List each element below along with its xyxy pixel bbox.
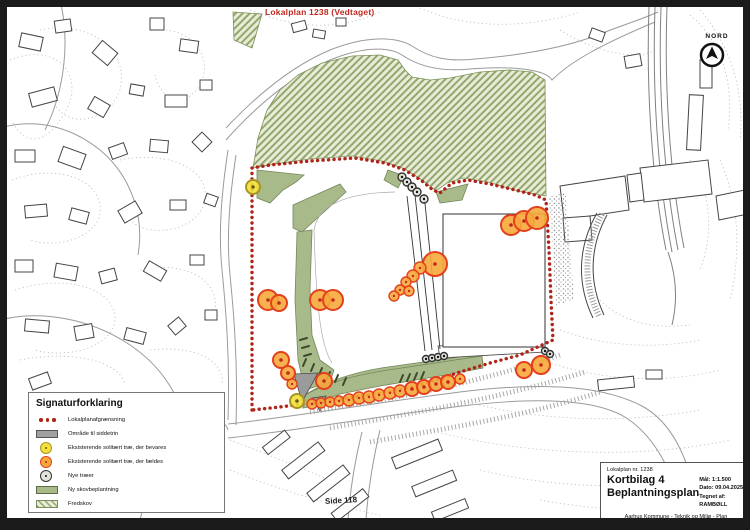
tree-fell-dot (311, 403, 313, 405)
legend-item: Lokalplanafgrænsning (36, 413, 217, 427)
legend-item-label: Eksisterende solitært træ, der bevares (68, 445, 166, 451)
tree-fell-dot (348, 399, 350, 401)
tree-fell-dot (535, 216, 539, 220)
red-dots-icon (36, 418, 62, 422)
legend-item-label: Fredskov (68, 501, 92, 507)
tree-fell-dot (399, 289, 401, 291)
green-rect-icon (36, 486, 62, 494)
tree-fell-dot (433, 262, 437, 266)
tree-fell-dot (331, 298, 335, 302)
legend-item-label: Ny skovbeplantning (68, 487, 119, 493)
title-block-sheet: Kortbilag 4 (607, 474, 699, 487)
tree-fell-dot (539, 363, 543, 367)
page-number-label: Side 118 (325, 495, 357, 506)
tree-fell-dot (410, 387, 414, 391)
tree-fell-dot (408, 290, 410, 292)
tree-new-dot (431, 357, 433, 359)
tree-keep-dot (251, 185, 255, 189)
tree-fell-dot (329, 401, 331, 403)
legend-item: Område til siddetrin (36, 427, 217, 441)
tree-fell-dot (405, 281, 407, 283)
legend-item: Fredskov (36, 497, 217, 511)
title-block-footer: Aarhus Kommune - Teknik og Miljø - Plan (607, 514, 743, 518)
tree-fell-dot (434, 382, 438, 386)
legend-box: Signaturforklaring LokalplanafgrænsningO… (28, 392, 225, 513)
legend-item-label: Lokalplanafgrænsning (68, 417, 125, 423)
tree-fell-dot (399, 390, 401, 392)
legend-rows: LokalplanafgrænsningOmråde til siddetrin… (36, 413, 217, 511)
legend-item-label: Område til siddetrin (68, 431, 118, 437)
tree-new-dot (401, 176, 403, 178)
tree-new-dot (425, 358, 427, 360)
legend-item: Eksisterende solitært træ, der fældes (36, 455, 217, 469)
orange-circle-icon (36, 456, 62, 468)
plan-status-label: Lokalplan 1238 (Vedtaget) (265, 7, 374, 17)
tree-fell-dot (277, 301, 281, 305)
tree-new-dot (416, 191, 418, 193)
tree-new-dot (544, 350, 546, 352)
gray-rect-icon (36, 430, 62, 438)
tree-fell-dot (422, 385, 426, 389)
new-tree-circle-icon (36, 470, 62, 482)
legend-item-label: Eksisterende solitært træ, der fældes (68, 459, 163, 465)
north-arrow-icon (697, 40, 727, 70)
tree-fell-dot (368, 396, 370, 398)
tree-fell-dot (378, 394, 380, 396)
tree-fell-dot (446, 380, 450, 384)
tree-fell-dot (322, 379, 326, 383)
tree-fell-dot (412, 275, 414, 277)
tree-fell-dot (522, 368, 526, 372)
title-block-drawn-by: Tegnet af: RAMBØLL (699, 493, 743, 510)
tree-fell-dot (358, 397, 360, 399)
screenshot-root: { "page": { "map_label": "Lokalplan 1238… (0, 0, 750, 530)
title-block-scale: Mål: 1:1.500 (699, 476, 743, 484)
tree-fell-dot (291, 383, 293, 385)
tree-fell-dot (266, 298, 270, 302)
yellow-circle-icon (36, 442, 62, 454)
tree-new-dot (549, 353, 551, 355)
north-label: NORD (697, 33, 737, 40)
north-arrow: NORD (697, 33, 737, 70)
tree-fell-dot (320, 402, 322, 404)
title-block-date: Dato: 09.04.2025 (699, 484, 743, 492)
legend-item: Eksisterende solitært træ, der bevares (36, 441, 217, 455)
plan-sheet: Lokalplan 1238 (Vedtaget) Side 118 NORD … (7, 7, 743, 518)
legend-title: Signaturforklaring (36, 398, 217, 409)
tree-fell-dot (286, 371, 290, 375)
tree-new-dot (406, 181, 408, 183)
legend-item: Ny skovbeplantning (36, 483, 217, 497)
tree-new-dot (443, 355, 445, 357)
title-block: Lokalplan nr. 1238 Kortbilag 4 Beplantni… (600, 462, 743, 518)
legend-item-label: Nye træer (68, 473, 94, 479)
tree-fell-dot (419, 267, 421, 269)
tree-fell-dot (459, 378, 461, 380)
tree-fell-dot (279, 358, 283, 362)
tree-new-dot (411, 186, 413, 188)
tree-keep-dot (295, 399, 299, 403)
legend-item: Nye træer (36, 469, 217, 483)
title-block-sheet-title: Beplantningsplan (607, 487, 699, 500)
tree-fell-dot (393, 295, 395, 297)
tree-fell-dot (509, 223, 513, 227)
hatch-rect-icon (36, 500, 62, 508)
tree-fell-dot (389, 392, 391, 394)
tree-fell-dot (318, 298, 322, 302)
tree-new-dot (437, 356, 439, 358)
tree-fell-dot (338, 400, 340, 402)
title-block-plan-no: Lokalplan nr. 1238 (607, 467, 699, 473)
tree-new-dot (423, 198, 425, 200)
